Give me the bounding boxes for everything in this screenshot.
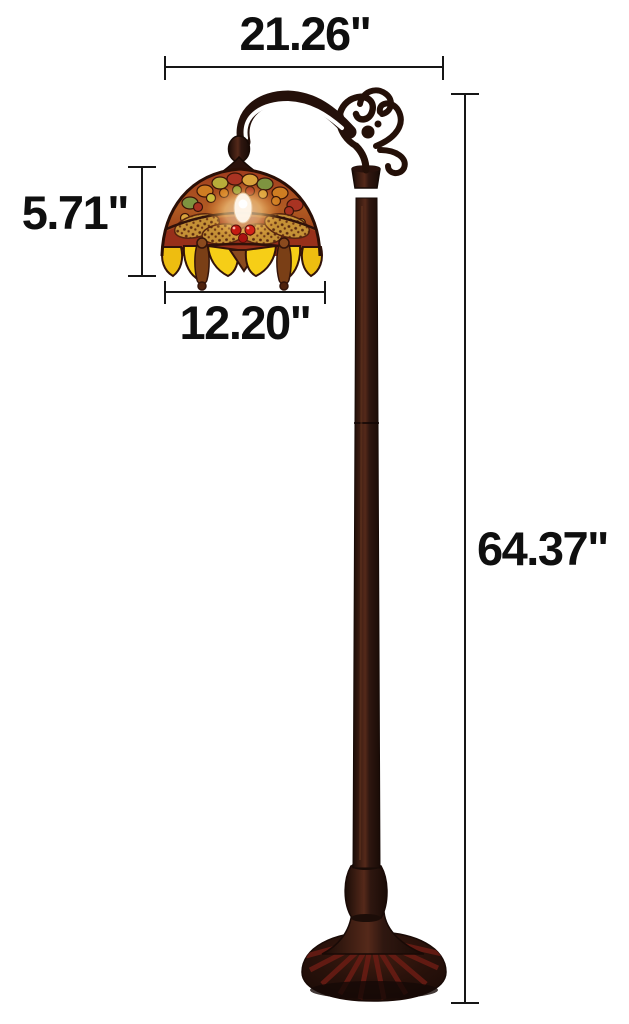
- shade-width-dim-line: [164, 291, 326, 293]
- overall-height-tick-top: [451, 93, 479, 95]
- shade-width-label: 12.20": [154, 299, 336, 346]
- lamp-pole: [353, 198, 380, 868]
- shade-skirt: [162, 246, 322, 278]
- shade-height-tick-top: [128, 166, 156, 168]
- overall-height-label: 64.37": [477, 525, 608, 572]
- lamp-illustration: [0, 0, 629, 1024]
- overall-height-dim-line: [464, 94, 466, 1004]
- bulb-hotspot: [239, 200, 248, 209]
- dragonfly-tail-head: [197, 238, 207, 248]
- dragonfly-tail-tip: [280, 282, 288, 290]
- overall-width-tick-right: [442, 56, 444, 80]
- shade-height-label: 5.71": [0, 189, 128, 236]
- dragonfly-tail-head: [279, 238, 289, 248]
- overall-width-tick-left: [164, 56, 166, 80]
- overall-width-label: 21.26": [165, 10, 445, 57]
- overall-height-tick-bottom: [451, 1002, 479, 1004]
- lamp-shade: [160, 169, 322, 290]
- skirt-lobe: [246, 246, 276, 276]
- overall-width-dim-line: [164, 66, 444, 68]
- base-shadow-rim: [310, 981, 438, 999]
- pole-knob-ring-bottom: [351, 914, 381, 922]
- shade-height-tick-bottom: [128, 275, 156, 277]
- product-dimension-diagram: 21.26" 5.71" 12.20" 64.37": [0, 0, 629, 1024]
- pole-knob: [345, 866, 387, 918]
- skirt-lobe: [162, 247, 182, 276]
- dragonfly-tail-tip: [198, 282, 206, 290]
- shade-height-dim-line: [141, 167, 143, 277]
- lamp-base: [302, 912, 446, 1001]
